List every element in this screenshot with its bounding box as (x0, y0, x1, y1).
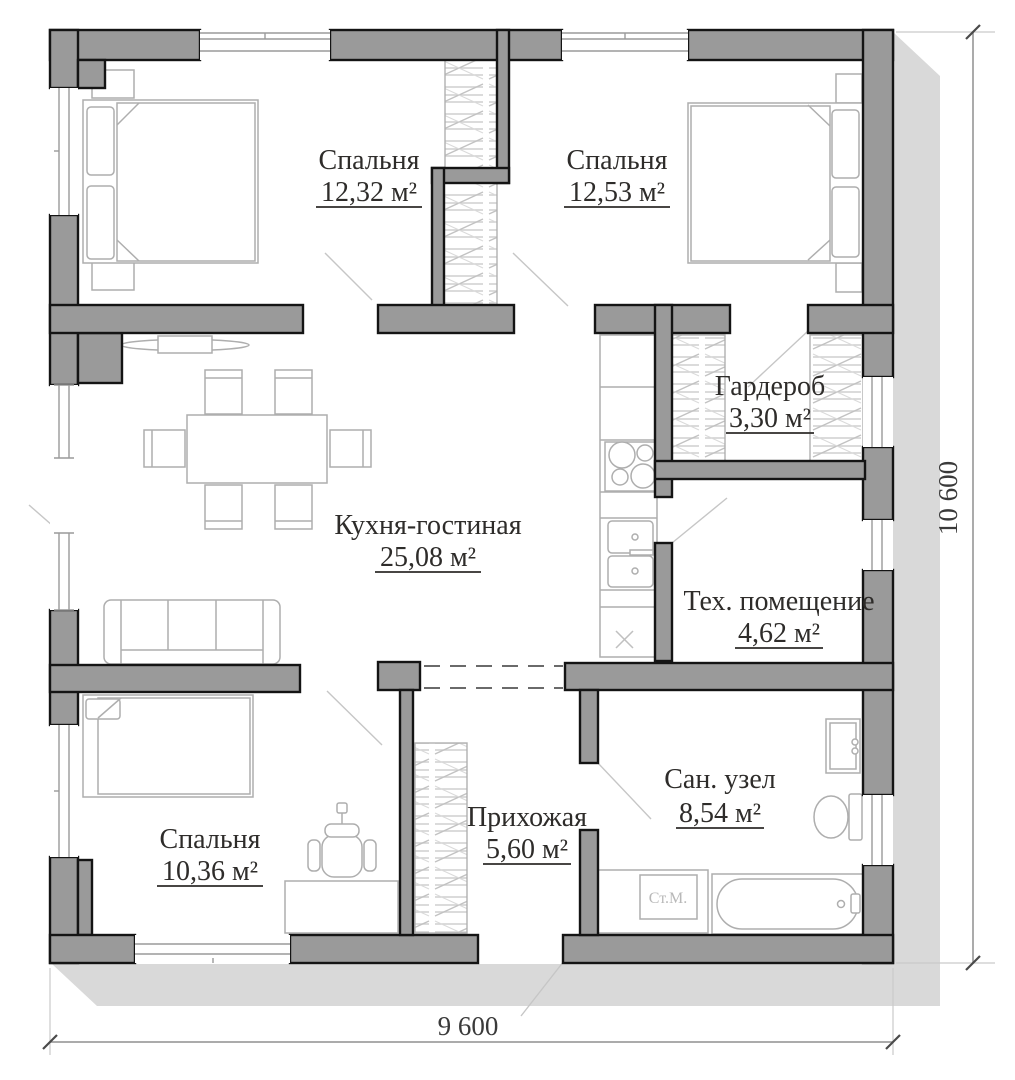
label-bedroom3-name: Спальня (160, 824, 261, 855)
wall-bottom-1 (50, 935, 135, 963)
wall-wardrobe-tech (655, 461, 865, 479)
bedroom1-closet (445, 60, 497, 168)
window-right-bathroom (863, 795, 893, 865)
wall-bath-north (565, 663, 893, 690)
label-kitchen-name: Кухня-гостиная (334, 510, 521, 541)
sofa (104, 600, 280, 664)
hallway-closet (415, 743, 467, 933)
wall-bedroom3-north (50, 665, 300, 692)
toilet (814, 794, 862, 840)
window-left-bedroom1 (50, 88, 78, 215)
label-bathroom-area: 8,54 м² (679, 798, 761, 829)
wall-bedroom3-corner (378, 662, 420, 690)
stove (605, 442, 655, 491)
wall-top-2 (330, 30, 562, 60)
label-kitchen-area: 25,08 м² (380, 542, 476, 573)
wall-left-pier (78, 333, 122, 383)
bed-bottom (83, 695, 253, 797)
wall-bedroom2-south-2 (808, 305, 893, 333)
wall-left-1 (50, 30, 78, 88)
label-bedroom1-name: Спальня (319, 145, 420, 176)
wall-bath-west-1 (580, 690, 598, 763)
wall-bedroom1-south (50, 305, 303, 333)
desk (285, 881, 398, 933)
label-hallway-area: 5,60 м² (486, 834, 568, 865)
floor-plan-page: 9 600 10 600 Спальня 12,32 м² Спальня 12… (0, 0, 1015, 1080)
wall-left-2 (50, 215, 78, 385)
window-top-bedroom1 (200, 30, 330, 60)
dim-label-width: 9 600 (438, 1011, 499, 1041)
wall-bath-west-2 (580, 830, 598, 935)
window-right-tech (863, 520, 893, 570)
wall-left-pilaster (78, 60, 105, 88)
floor-plan-drawing: 9 600 10 600 Спальня 12,32 м² Спальня 12… (0, 0, 1015, 1080)
window-right-wardrobe (863, 377, 893, 447)
wall-right-2 (863, 447, 893, 520)
bathtub (712, 874, 863, 934)
wall-closet-east (497, 30, 509, 183)
label-wardrobe-name: Гардероб (715, 371, 825, 402)
label-tech-name: Тех. помещение (683, 586, 874, 617)
label-bathroom-name: Сан. узел (664, 764, 776, 795)
label-bedroom1-area: 12,32 м² (321, 177, 417, 208)
bathroom-sink (826, 719, 860, 773)
window-left-bedroom3 (50, 725, 78, 857)
label-bedroom2-name: Спальня (567, 145, 668, 176)
window-bottom-bedroom3 (135, 935, 290, 963)
label-wardrobe-area: 3,30 м² (729, 403, 811, 434)
label-tech-area: 4,62 м² (738, 618, 820, 649)
wall-bottom-2 (290, 935, 478, 963)
wall-bottom-3 (563, 935, 893, 963)
wall-left-pier-2 (78, 860, 92, 935)
label-hallway-name: Прихожая (467, 802, 587, 833)
label-washing-machine: Ст.М. (649, 890, 687, 907)
wall-hall-west (400, 690, 413, 935)
window-left-living-1 (50, 385, 78, 610)
wall-kitchen-east-2 (655, 543, 672, 661)
window-top-bedroom2 (562, 30, 688, 60)
label-bedroom2-area: 12,53 м² (569, 177, 665, 208)
wall-closet-south (378, 305, 514, 333)
label-bedroom3-area: 10,36 м² (162, 856, 258, 887)
bed-top-left (83, 70, 258, 290)
wall-closet-west (432, 168, 444, 307)
bed-top-right (688, 74, 863, 292)
bedroom2-closet (444, 183, 497, 305)
kitchen-counter (600, 335, 657, 657)
dim-label-height: 10 600 (933, 461, 963, 535)
